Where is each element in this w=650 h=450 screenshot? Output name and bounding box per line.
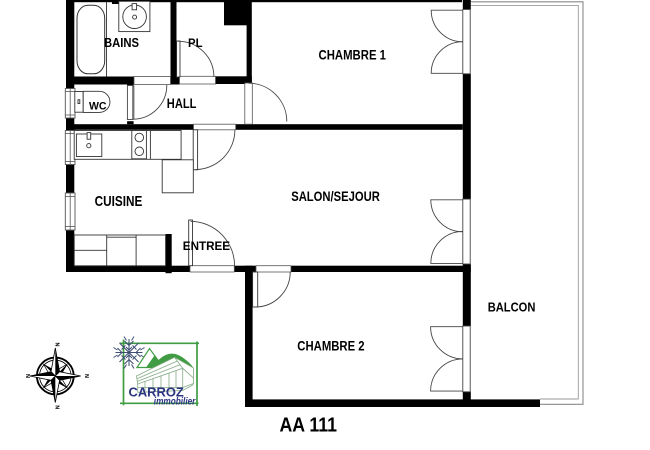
svg-text:SALON/SEJOUR: SALON/SEJOUR [291, 188, 380, 204]
svg-text:N: N [53, 405, 59, 409]
svg-text:BAINS: BAINS [104, 36, 139, 50]
svg-text:AA 111: AA 111 [280, 415, 338, 437]
svg-text:ENTREE: ENTREE [183, 241, 231, 253]
svg-text:N: N [83, 374, 89, 378]
svg-text:CHAMBRE 2: CHAMBRE 2 [297, 339, 364, 354]
svg-text:WC: WC [89, 101, 107, 113]
svg-text:N: N [53, 343, 59, 347]
svg-text:CHAMBRE 1: CHAMBRE 1 [319, 48, 387, 63]
svg-text:CUISINE: CUISINE [95, 193, 143, 210]
svg-text:PL: PL [188, 36, 203, 50]
svg-text:N: N [24, 374, 30, 378]
svg-text:HALL: HALL [167, 96, 197, 111]
svg-text:BALCON: BALCON [488, 300, 536, 315]
svg-text:immobilier: immobilier [154, 396, 197, 407]
